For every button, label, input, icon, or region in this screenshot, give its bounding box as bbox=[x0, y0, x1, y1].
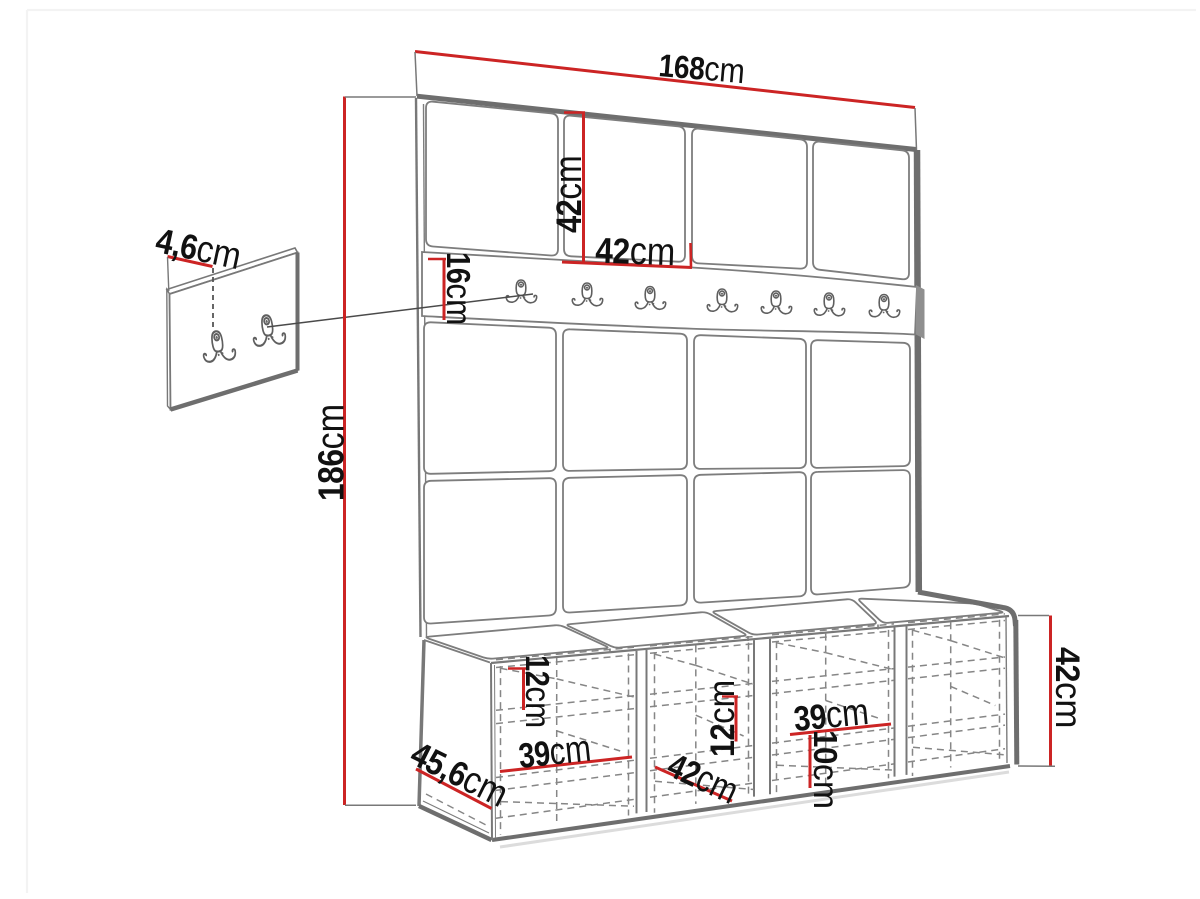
svg-text:168cm: 168cm bbox=[657, 44, 746, 90]
svg-text:42cm: 42cm bbox=[1048, 647, 1089, 728]
svg-text:16cm: 16cm bbox=[439, 252, 478, 325]
svg-text:42cm: 42cm bbox=[547, 155, 589, 233]
svg-text:39cm: 39cm bbox=[517, 728, 593, 777]
svg-text:12cm: 12cm bbox=[518, 655, 557, 728]
svg-text:12cm: 12cm bbox=[701, 680, 742, 757]
svg-text:42cm: 42cm bbox=[595, 227, 676, 273]
svg-text:186cm: 186cm bbox=[308, 404, 352, 501]
svg-text:10cm: 10cm bbox=[806, 730, 845, 809]
